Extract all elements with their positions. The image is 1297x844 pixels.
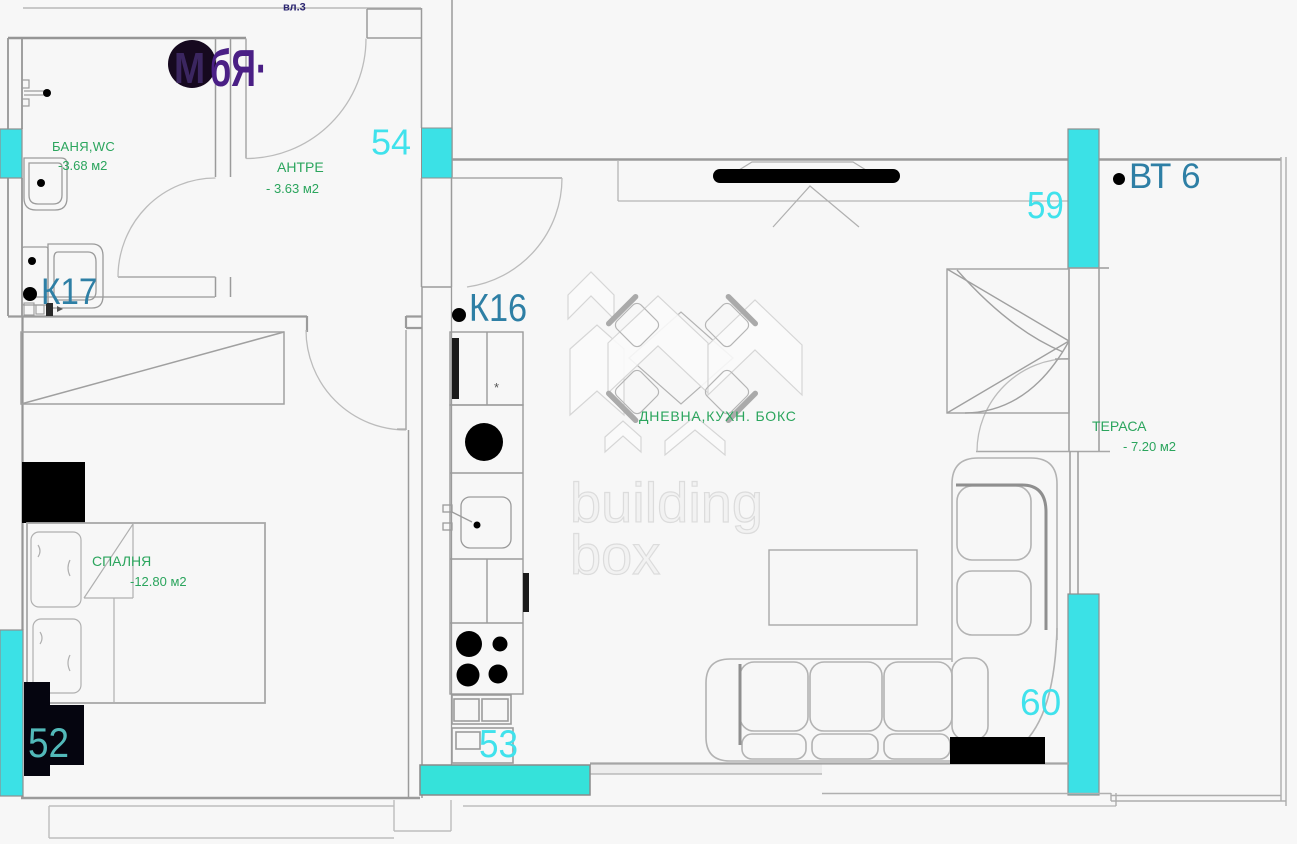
svg-text:- 3.63 м2: - 3.63 м2 xyxy=(266,181,319,196)
svg-text:60: 60 xyxy=(1020,682,1061,723)
svg-text:БАНЯ,WC: БАНЯ,WC xyxy=(52,139,115,154)
svg-text:СПАЛНЯ: СПАЛНЯ xyxy=(92,553,151,569)
svg-text:К17: К17 xyxy=(41,271,97,312)
svg-text:вл.3: вл.3 xyxy=(283,2,306,14)
svg-text:-12.80 м2: -12.80 м2 xyxy=(130,574,187,589)
svg-text:М: М xyxy=(174,43,205,93)
svg-text:К16: К16 xyxy=(469,286,527,330)
svg-text:59: 59 xyxy=(1027,184,1064,227)
svg-text:ДНЕВНА,КУХН. БОКС: ДНЕВНА,КУХН. БОКС xyxy=(639,408,797,424)
svg-text:box: box xyxy=(570,523,660,586)
svg-text:- 7.20 м2: - 7.20 м2 xyxy=(1123,439,1176,454)
svg-text:ВТ 6: ВТ 6 xyxy=(1129,157,1201,196)
svg-text:52: 52 xyxy=(28,720,69,767)
svg-text:53: 53 xyxy=(479,721,518,765)
svg-text:-3.68 м2: -3.68 м2 xyxy=(58,158,107,173)
svg-text:ТЕРАСА: ТЕРАСА xyxy=(1092,418,1147,434)
svg-text:54: 54 xyxy=(371,122,411,163)
svg-text:бЯ·: бЯ· xyxy=(210,40,267,98)
svg-text:АНТРЕ: АНТРЕ xyxy=(277,159,324,175)
svg-text:*: * xyxy=(494,380,499,395)
